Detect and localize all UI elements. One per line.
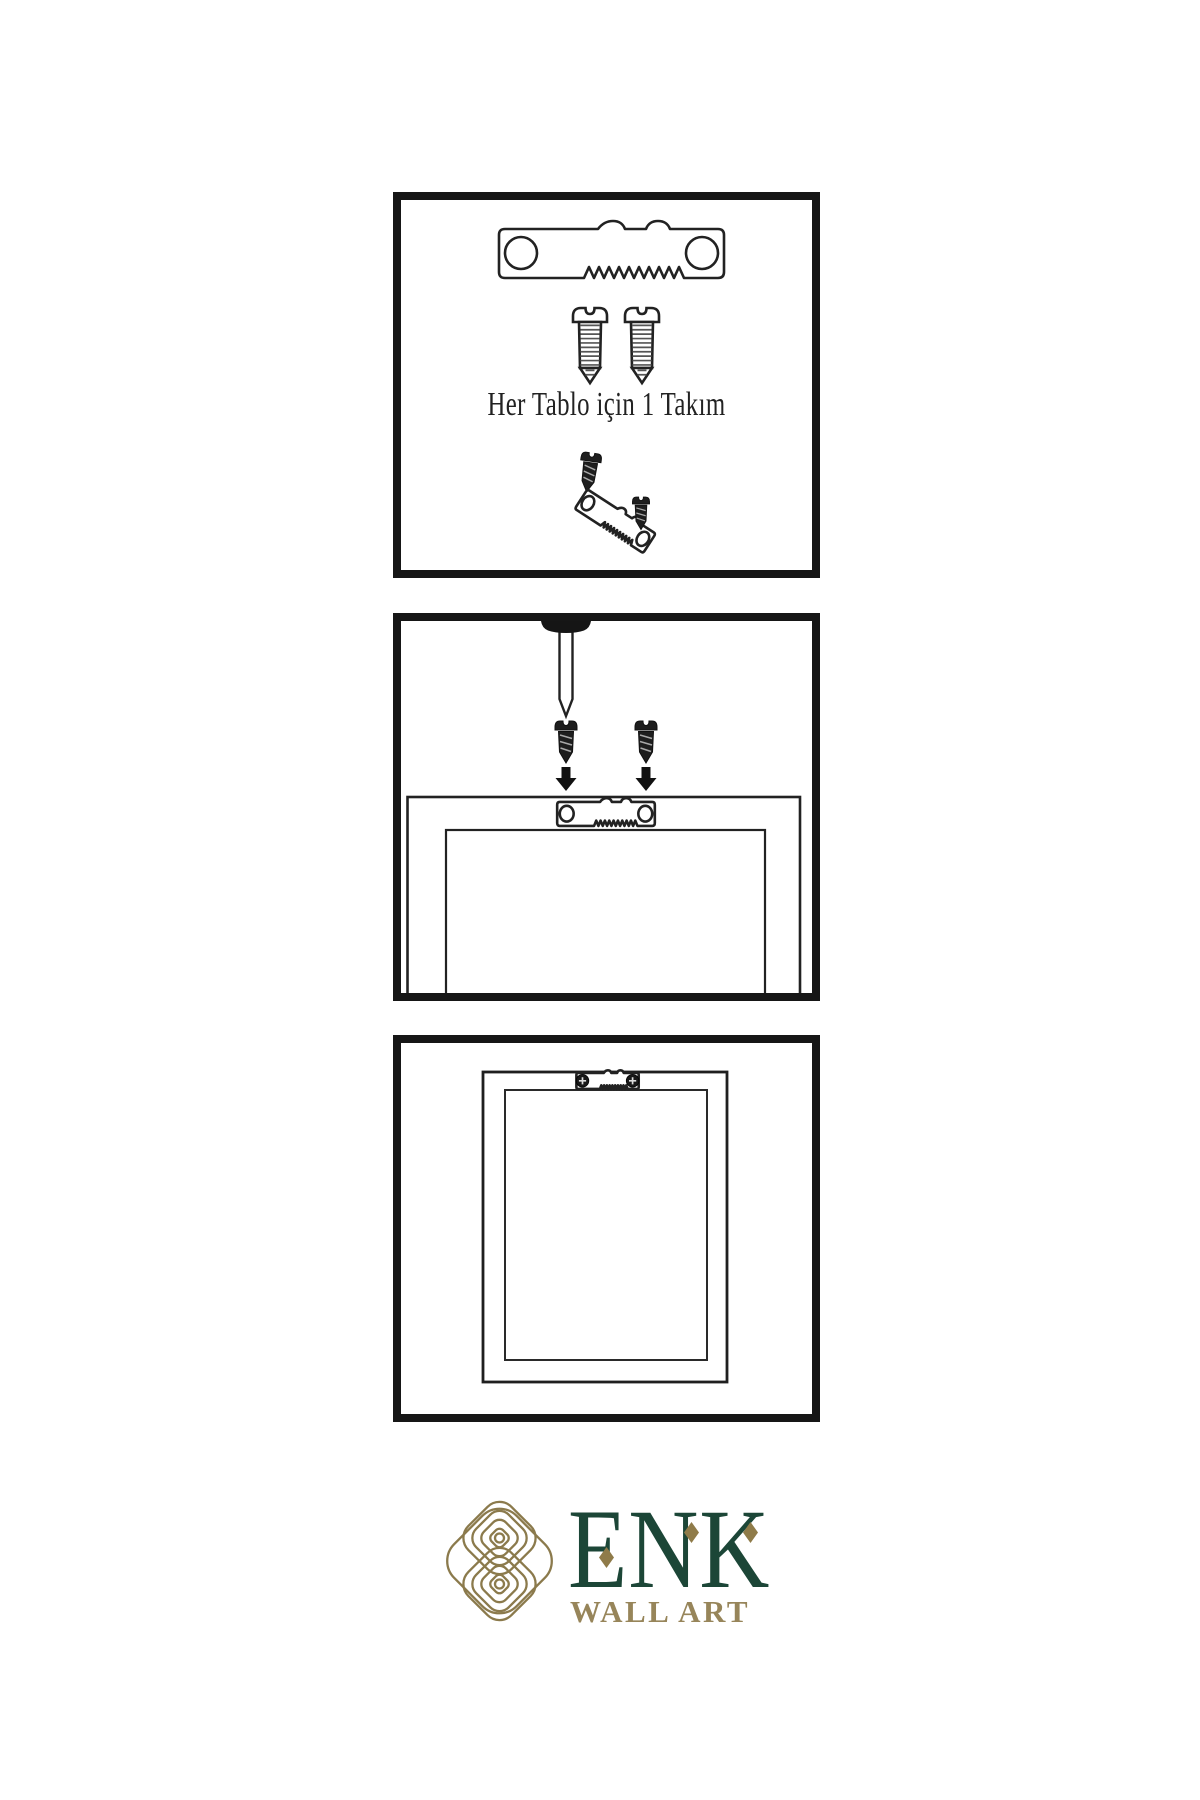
screw-icon: [573, 308, 607, 383]
dark-screw-icon: [555, 721, 577, 763]
phillips-screw-head-icon: [626, 1075, 639, 1088]
instruction-sheet: { "page": { "background": "#ffffff", "li…: [0, 0, 1200, 1800]
panel-finished-step: [393, 1035, 820, 1422]
sawtooth-hanger-icon: [499, 221, 724, 278]
frame-inner-edge: [446, 830, 765, 993]
sawtooth-hanger-icon: [557, 798, 655, 826]
panel-install-step: [393, 613, 820, 1001]
knot-icon: [437, 1497, 562, 1625]
down-arrow-icon: [636, 767, 657, 791]
panel-kit-contents: Her Tablo için 1 Takım: [393, 192, 820, 578]
install-diagram: [401, 621, 812, 993]
kit-caption: Her Tablo için 1 Takım: [456, 386, 756, 424]
dark-screw-icon: [635, 721, 657, 763]
frame-inner-edge: [505, 1090, 707, 1360]
nail-icon: [541, 621, 591, 716]
phillips-screw-head-icon: [576, 1075, 589, 1088]
finished-diagram: [401, 1043, 812, 1414]
brand-tagline: WALL ART: [570, 1594, 750, 1630]
screw-icon: [625, 308, 659, 383]
down-arrow-icon: [556, 767, 577, 791]
kit-diagram: [401, 200, 812, 570]
dark-screw-icon: [576, 452, 602, 494]
brand-name: ENK: [568, 1493, 770, 1606]
